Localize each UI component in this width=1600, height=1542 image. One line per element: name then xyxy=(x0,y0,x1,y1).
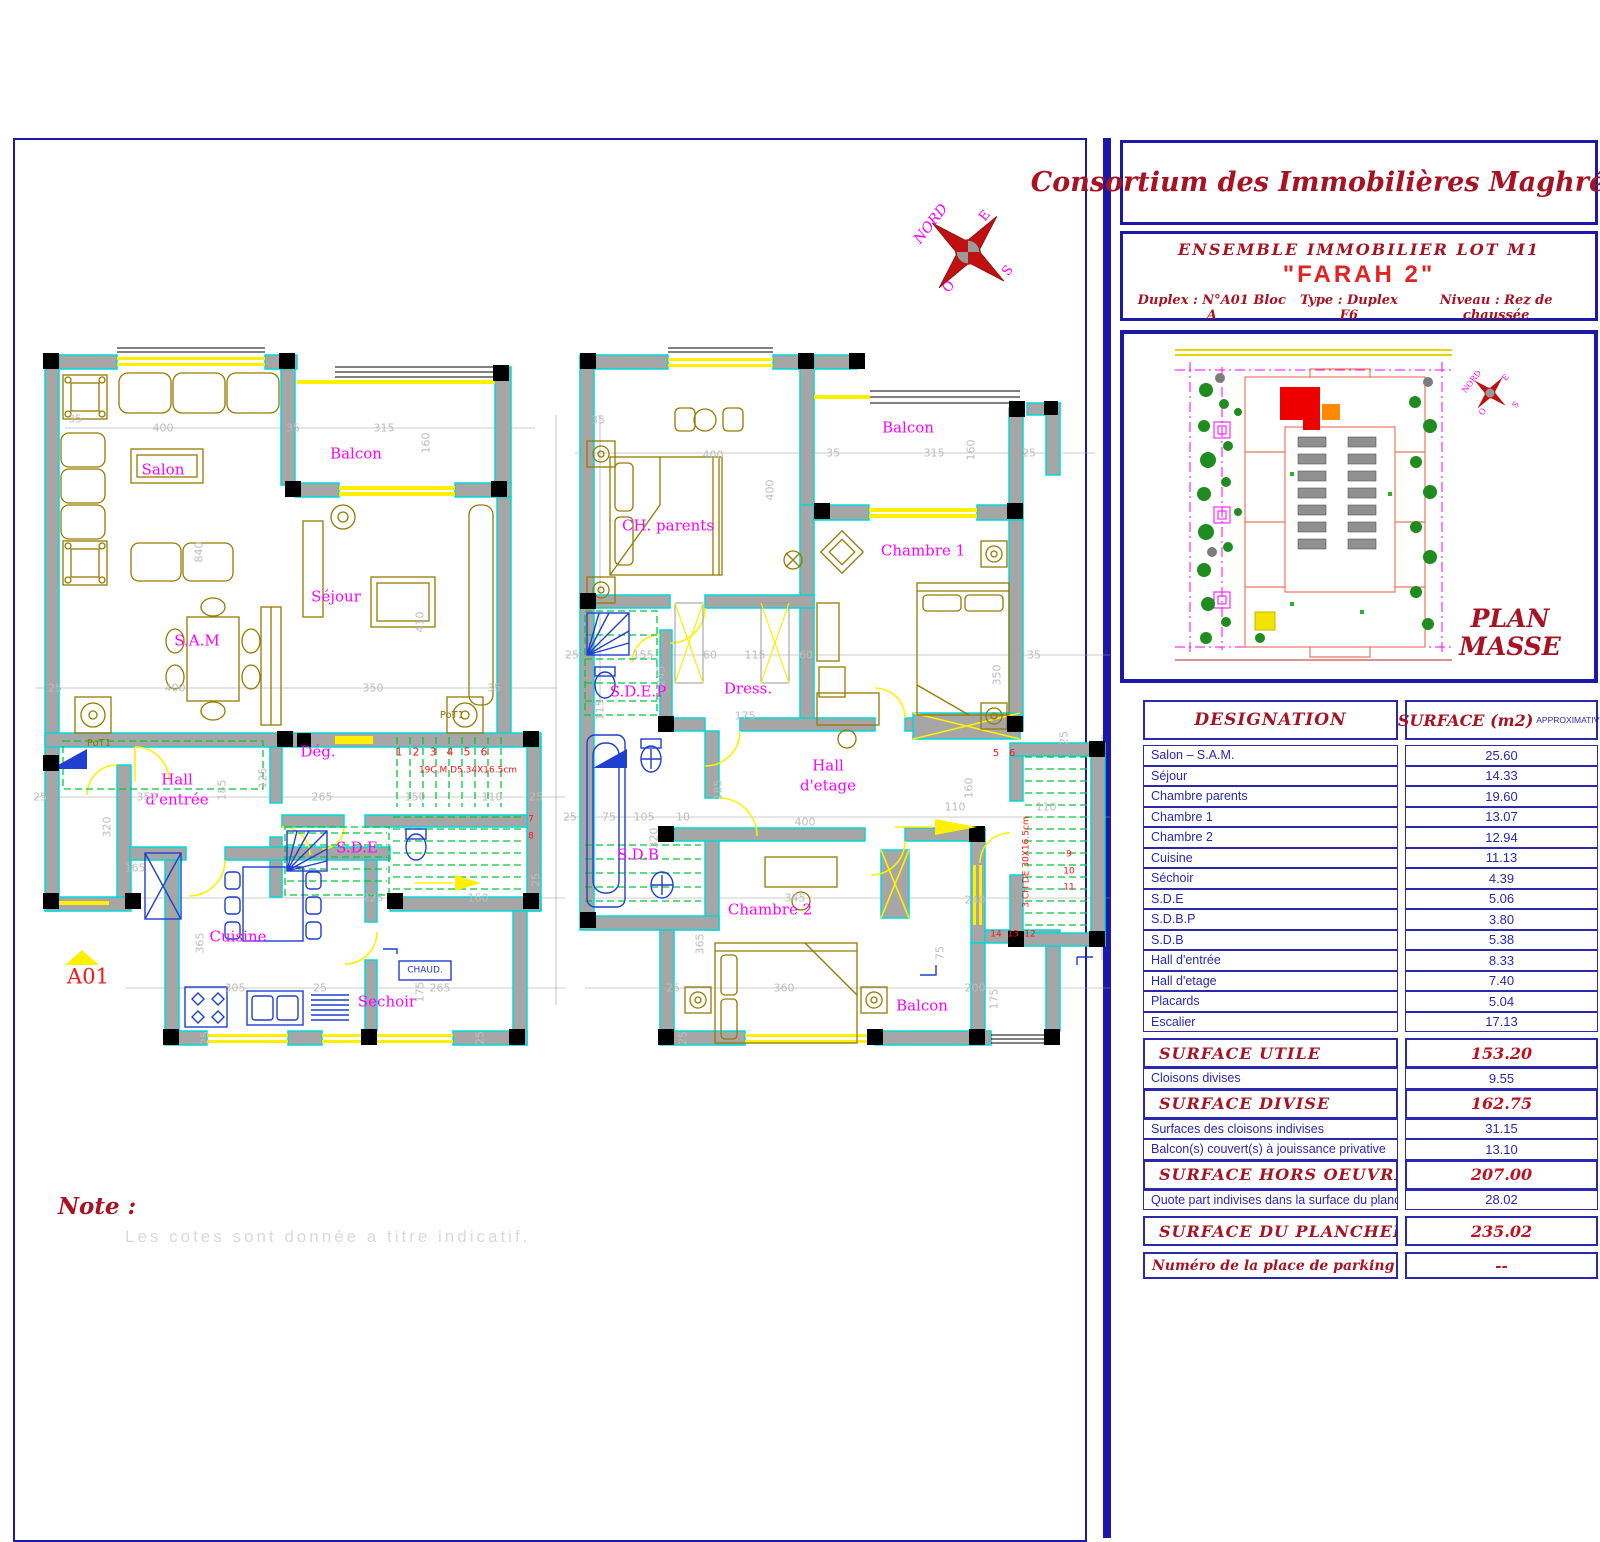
highlighted-unit xyxy=(1280,387,1320,430)
designation-cell: S.D.E xyxy=(1143,889,1398,910)
surface-table-row: Surfaces des cloisons indivises31.15 xyxy=(1143,1119,1598,1140)
surface-table-row: Cloisons divises9.55 xyxy=(1143,1068,1598,1089)
surface-cell: 14.33 xyxy=(1405,766,1598,787)
surface-table: Salon – S.A.M.25.60Séjour14.33Chambre pa… xyxy=(1143,745,1598,1281)
surface-table-row: Hall d'entrée8.33 xyxy=(1143,950,1598,971)
note-text: Les cotes sont donnée a titre indicatif. xyxy=(125,1227,530,1247)
designation-cell: Quote part indivises dans la surface du … xyxy=(1143,1190,1398,1211)
designation-cell: Séchoir xyxy=(1143,868,1398,889)
surface-cell: 31.15 xyxy=(1405,1119,1598,1140)
surface-cell: 17.13 xyxy=(1405,1012,1598,1033)
designation-cell: Balcon(s) couvert(s) à jouissance privat… xyxy=(1143,1139,1398,1160)
surface-table-row: Quote part indivises dans la surface du … xyxy=(1143,1190,1598,1211)
compass-rose-icon xyxy=(912,192,1027,307)
table-header-surface: SURFACE (m2) APPROXIMATIVE xyxy=(1405,700,1598,740)
designation-cell: Numéro de la place de parking xyxy=(1143,1252,1398,1279)
surface-table-row: Chambre parents19.60 xyxy=(1143,786,1598,807)
niveau-label: Niveau : Rez de chaussée xyxy=(1407,293,1585,323)
designation-cell: Surfaces des cloisons indivises xyxy=(1143,1119,1398,1140)
surface-cell: 13.10 xyxy=(1405,1139,1598,1160)
surface-cell: -- xyxy=(1405,1252,1598,1279)
designation-cell: Chambre 1 xyxy=(1143,807,1398,828)
surface-cell: 8.33 xyxy=(1405,950,1598,971)
floorplan-ground xyxy=(35,345,565,1055)
surface-cell: 28.02 xyxy=(1405,1190,1598,1211)
type-label: Type : Duplex F6 xyxy=(1291,293,1408,323)
surface-cell: 5.04 xyxy=(1405,991,1598,1012)
project-title-box: ENSEMBLE IMMOBILIER LOT M1 "FARAH 2" Dup… xyxy=(1120,231,1598,321)
surface-cell: 162.75 xyxy=(1405,1089,1598,1119)
surface-cell: 4.39 xyxy=(1405,868,1598,889)
designation-cell: Cloisons divises xyxy=(1143,1068,1398,1089)
surface-cell: 25.60 xyxy=(1405,745,1598,766)
surface-cell: 13.07 xyxy=(1405,807,1598,828)
surface-table-row: SURFACE DIVISE162.75 xyxy=(1143,1089,1598,1119)
surface-table-row: Chambre 113.07 xyxy=(1143,807,1598,828)
company-title-box: Consortium des Immobilières Maghrébines xyxy=(1120,140,1598,225)
surface-table-row: Séchoir4.39 xyxy=(1143,868,1598,889)
surface-cell: 3.80 xyxy=(1405,909,1598,930)
project-name: "FARAH 2" xyxy=(1123,261,1595,289)
surface-table-row: S.D.E5.06 xyxy=(1143,889,1598,910)
floorplan-upper xyxy=(565,345,1110,1055)
site-plan xyxy=(1160,342,1460,672)
surface-table-row: Escalier17.13 xyxy=(1143,1012,1598,1033)
surface-table-row: Hall d'etage7.40 xyxy=(1143,971,1598,992)
designation-cell: SURFACE DIVISE xyxy=(1143,1089,1398,1119)
surface-table-row: Chambre 212.94 xyxy=(1143,827,1598,848)
table-header-designation: DESIGNATION xyxy=(1143,700,1398,740)
designation-cell: Placards xyxy=(1143,991,1398,1012)
project-line: ENSEMBLE IMMOBILIER LOT M1 xyxy=(1123,240,1595,259)
designation-cell: SURFACE HORS OEUVRE xyxy=(1143,1160,1398,1190)
surface-cell: 7.40 xyxy=(1405,971,1598,992)
surface-cell: 11.13 xyxy=(1405,848,1598,869)
designation-cell: Hall d'etage xyxy=(1143,971,1398,992)
surface-table-row: S.D.B5.38 xyxy=(1143,930,1598,951)
surface-cell: 9.55 xyxy=(1405,1068,1598,1089)
designation-cell: Salon – S.A.M. xyxy=(1143,745,1398,766)
designation-cell: Chambre 2 xyxy=(1143,827,1398,848)
surface-table-row: Cuisine11.13 xyxy=(1143,848,1598,869)
surface-table-row: Salon – S.A.M.25.60 xyxy=(1143,745,1598,766)
surface-cell: 153.20 xyxy=(1405,1038,1598,1068)
company-name: Consortium des Immobilières Maghrébines xyxy=(1031,167,1600,198)
note-heading: Note : xyxy=(58,1193,136,1220)
surface-cell: 19.60 xyxy=(1405,786,1598,807)
surface-cell: 12.94 xyxy=(1405,827,1598,848)
surface-table-row: Balcon(s) couvert(s) à jouissance privat… xyxy=(1143,1139,1598,1160)
surface-table-row: S.D.B.P3.80 xyxy=(1143,909,1598,930)
designation-cell: Escalier xyxy=(1143,1012,1398,1033)
surface-table-row: SURFACE HORS OEUVRE207.00 xyxy=(1143,1160,1598,1190)
designation-cell: S.D.B.P xyxy=(1143,909,1398,930)
surface-table-row: Placards5.04 xyxy=(1143,991,1598,1012)
designation-cell: Séjour xyxy=(1143,766,1398,787)
surface-table-row: SURFACE DU PLANCHER235.02 xyxy=(1143,1216,1598,1246)
designation-cell: SURFACE DU PLANCHER xyxy=(1143,1216,1398,1246)
designation-cell: Chambre parents xyxy=(1143,786,1398,807)
designation-cell: S.D.B xyxy=(1143,930,1398,951)
surface-table-row: Numéro de la place de parking-- xyxy=(1143,1252,1598,1279)
surface-cell: 5.38 xyxy=(1405,930,1598,951)
designation-cell: SURFACE UTILE xyxy=(1143,1038,1398,1068)
surface-cell: 235.02 xyxy=(1405,1216,1598,1246)
site-compass-icon xyxy=(1460,358,1530,428)
surface-cell: 5.06 xyxy=(1405,889,1598,910)
plan-masse-caption: PLAN MASSE xyxy=(1440,605,1580,660)
surface-table-row: SURFACE UTILE153.20 xyxy=(1143,1038,1598,1068)
surface-table-row: Séjour14.33 xyxy=(1143,766,1598,787)
surface-cell: 207.00 xyxy=(1405,1160,1598,1190)
designation-cell: Hall d'entrée xyxy=(1143,950,1398,971)
duplex-label: Duplex : N°A01 Bloc A xyxy=(1133,293,1291,323)
designation-cell: Cuisine xyxy=(1143,848,1398,869)
